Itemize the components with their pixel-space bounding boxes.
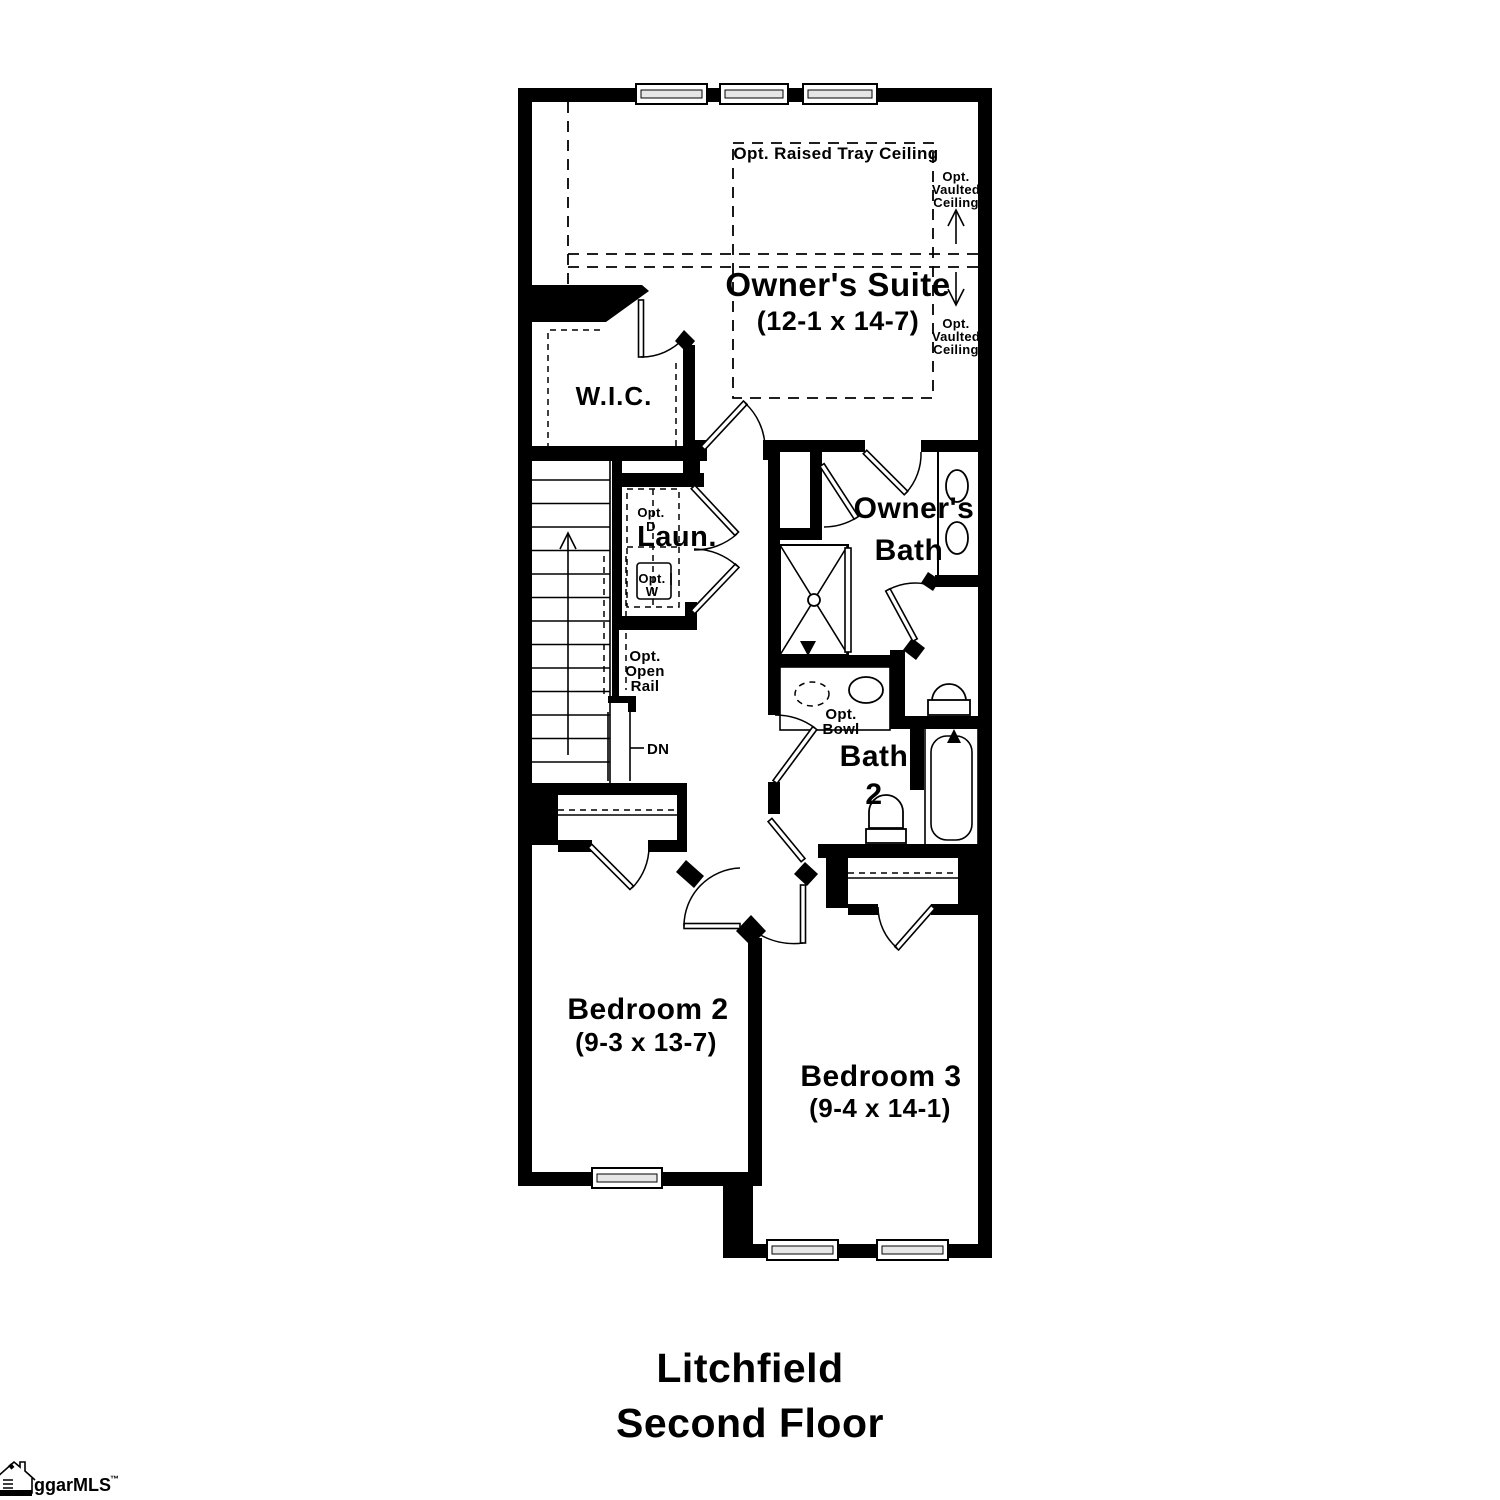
window	[877, 1240, 948, 1260]
vaulted-upper-line3: Ceiling	[933, 195, 978, 210]
window	[592, 1168, 662, 1188]
wall-suite-bottom-right	[921, 440, 978, 452]
wall-wic-bottom	[518, 446, 704, 461]
open-rail-line3: Rail	[631, 678, 660, 695]
owners-bath-line1: Owner's	[854, 492, 975, 525]
wall-toilet-room-left	[890, 650, 905, 716]
bath2-line2: 2	[865, 778, 882, 811]
floor-plan-canvas: Opt. Raised Tray Ceiling Opt. Vaulted Ce…	[0, 0, 1500, 1500]
bath2-line1: Bath	[840, 740, 909, 773]
wall-linen-bottom	[768, 528, 822, 540]
bedroom3-label: Bedroom 3	[800, 1060, 961, 1093]
plan-name: Litchfield	[656, 1345, 843, 1391]
bedroom2-door-leaf	[684, 924, 740, 929]
opt-bowl-line2: Bowl	[822, 721, 859, 738]
shower-door	[845, 548, 851, 652]
tray-ceiling-label: Opt. Raised Tray Ceiling	[733, 144, 938, 163]
vaulted-lower-line3: Ceiling	[933, 342, 978, 357]
wall-bedroom2-closet-bottom-left	[558, 840, 592, 852]
wall-bedroom3-closet-right-block	[958, 858, 992, 915]
wall-bath2-bottom	[818, 844, 992, 858]
wall-shower-bottom	[768, 655, 905, 667]
wic-label: W.I.C.	[576, 381, 653, 411]
bedroom3-dims: (9-4 x 14-1)	[809, 1093, 951, 1123]
wall-exterior-left	[518, 88, 532, 1186]
wall-suite-bottom-left	[763, 440, 865, 452]
owners-suite-dims: (12-1 x 14-7)	[757, 306, 920, 336]
wall-wic-right	[683, 345, 695, 452]
window	[720, 84, 788, 104]
wic-door-leaf	[639, 300, 644, 357]
laundry-label: Laun.	[637, 521, 717, 553]
wall-linen	[810, 452, 822, 528]
bedroom2-dims: (9-3 x 13-7)	[575, 1027, 717, 1057]
wall-bedroom2-closet-block	[518, 793, 558, 845]
opt-washer-line2: W	[646, 584, 659, 599]
wall-exterior-right	[978, 88, 992, 1258]
wall-hall-bath-west	[768, 452, 780, 715]
wall-bedroom3-closet-bottom-left	[848, 904, 878, 915]
logo-trademark: ™	[110, 1474, 119, 1484]
wall-bedroom2-closet-bottom-right	[648, 840, 687, 852]
wall-tub-left	[910, 728, 924, 790]
owners-bath-line2: Bath	[875, 534, 944, 567]
bedroom2-label: Bedroom 2	[567, 993, 728, 1026]
sink	[849, 677, 883, 703]
logo-text: ggarMLS	[34, 1475, 111, 1495]
wall-toilet-room-bottom	[890, 716, 992, 729]
owners-suite-label: Owner's Suite	[725, 266, 950, 303]
jamb-laundry-top	[683, 452, 700, 487]
window	[803, 84, 877, 104]
sink	[946, 522, 968, 554]
wall-hall-bath-west-lower	[768, 782, 780, 814]
page-background	[0, 0, 1500, 1500]
wall-vanity-bottom	[935, 575, 992, 587]
wall-exterior-bottom-bedroom3	[723, 1244, 992, 1258]
wall-laundry-bottom	[612, 616, 692, 630]
plan-floor: Second Floor	[616, 1400, 884, 1446]
opt-dryer-line1: Opt.	[637, 505, 664, 520]
wall-bedroom-divider	[748, 938, 762, 1186]
wall-bedroom3-closet-left-block	[826, 858, 848, 908]
window	[767, 1240, 838, 1260]
bedroom3-door-leaf	[801, 885, 806, 943]
window	[636, 84, 707, 104]
dn-label: DN	[647, 741, 669, 758]
wall-bedroom3-closet-bottom-right	[931, 904, 960, 915]
